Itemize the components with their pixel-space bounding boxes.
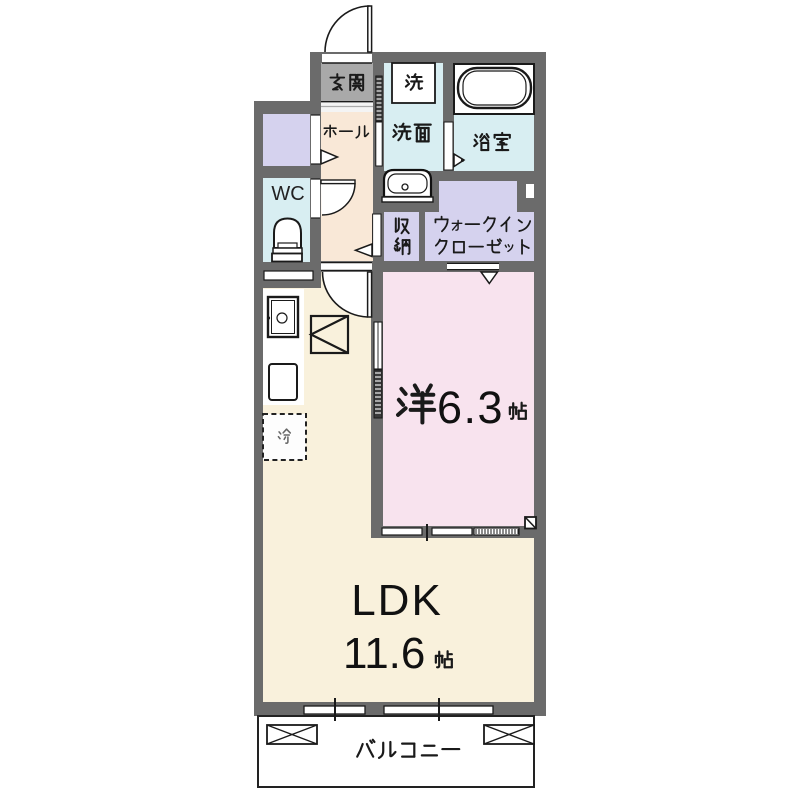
svg-text:11.6: 11.6 [343,629,425,678]
svg-text:6.3: 6.3 [437,382,504,433]
svg-text:LDK: LDK [351,576,443,625]
svg-text:WC: WC [271,183,304,205]
